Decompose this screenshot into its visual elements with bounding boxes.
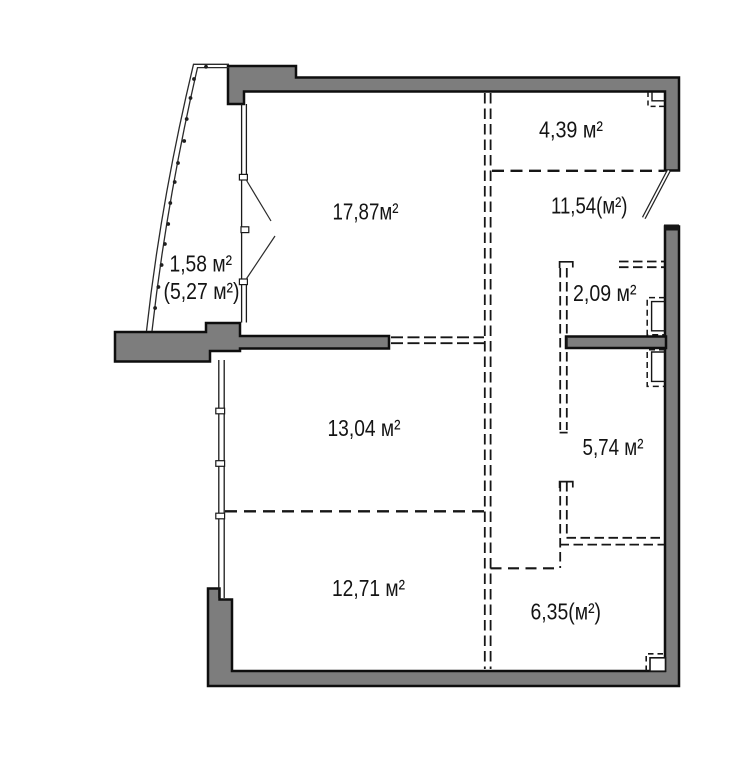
svg-text:6,35(м²): 6,35(м²) [531, 599, 602, 625]
svg-text:17,87м²: 17,87м² [333, 199, 399, 225]
svg-text:2,09 м²: 2,09 м² [573, 280, 637, 306]
svg-text:1,58 м²: 1,58 м² [170, 250, 233, 276]
svg-text:4,39 м²: 4,39 м² [539, 117, 603, 143]
svg-text:11,54(м²): 11,54(м²) [551, 193, 628, 219]
svg-text:12,71 м²: 12,71 м² [332, 575, 405, 601]
svg-text:5,74 м²: 5,74 м² [583, 434, 644, 460]
svg-text:(5,27 м²): (5,27 м²) [164, 278, 240, 304]
svg-text:13,04 м²: 13,04 м² [328, 415, 401, 441]
